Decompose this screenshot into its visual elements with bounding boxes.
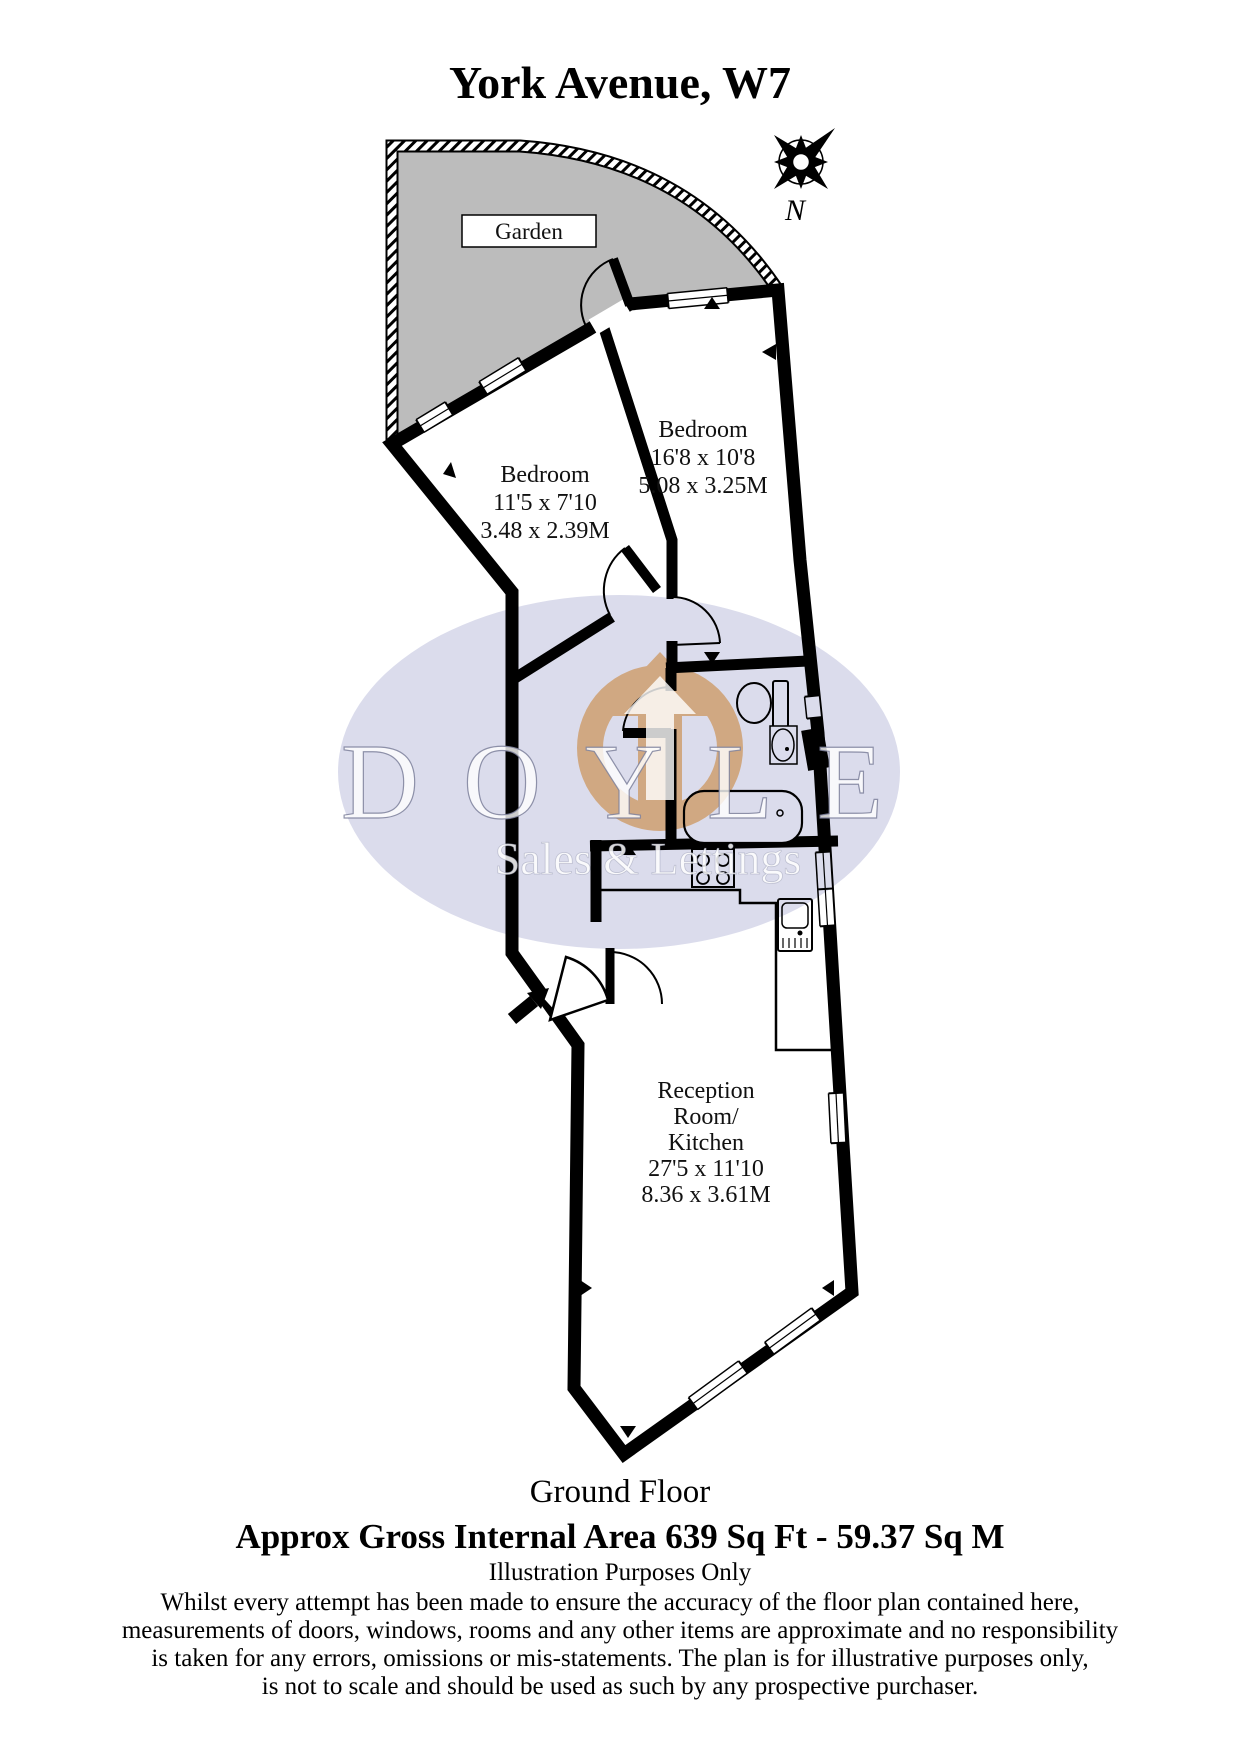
reception-line3: Kitchen — [668, 1130, 744, 1156]
footer: Ground Floor Approx Gross Internal Area … — [122, 1474, 1119, 1700]
page-title: York Avenue, W7 — [449, 57, 791, 108]
floor-label: Ground Floor — [530, 1474, 711, 1510]
watermark-tagline: Sales & Lettings — [495, 833, 802, 884]
compass-n-label: N — [784, 194, 807, 227]
illustration-note: Illustration Purposes Only — [489, 1559, 752, 1586]
bedroom2-metric: 3.48 x 2.39M — [480, 518, 609, 544]
window — [829, 1093, 846, 1144]
disclaimer-line: is not to scale and should be used as su… — [262, 1673, 979, 1700]
reception-imperial: 27'5 x 11'10 — [648, 1156, 764, 1182]
reception-line1: Reception — [657, 1078, 754, 1104]
watermark: DOYLE Sales & Lettings — [338, 595, 927, 949]
garden-label: Garden — [495, 219, 563, 244]
disclaimer-line: is taken for any errors, omissions or mi… — [151, 1645, 1088, 1672]
area-label: Approx Gross Internal Area 639 Sq Ft - 5… — [235, 1517, 1004, 1556]
compass-rose-icon: N — [774, 128, 835, 227]
bedroom2-imperial: 11'5 x 7'10 — [493, 490, 597, 516]
bedroom1-imperial: 16'8 x 10'8 — [651, 445, 756, 471]
disclaimer-line: Whilst every attempt has been made to en… — [160, 1589, 1079, 1616]
bedroom1-metric: 5.08 x 3.25M — [638, 473, 767, 499]
bedroom1-name: Bedroom — [658, 417, 748, 443]
floor-plan-svg: Garden — [0, 0, 1240, 1754]
watermark-brand: DOYLE — [341, 723, 927, 842]
bedroom2-name: Bedroom — [500, 462, 590, 488]
reception-metric: 8.36 x 3.61M — [641, 1182, 770, 1208]
floorplan-page: Garden — [0, 0, 1240, 1754]
disclaimer-line: measurements of doors, windows, rooms an… — [122, 1617, 1119, 1644]
reception-line2: Room/ — [673, 1104, 739, 1130]
